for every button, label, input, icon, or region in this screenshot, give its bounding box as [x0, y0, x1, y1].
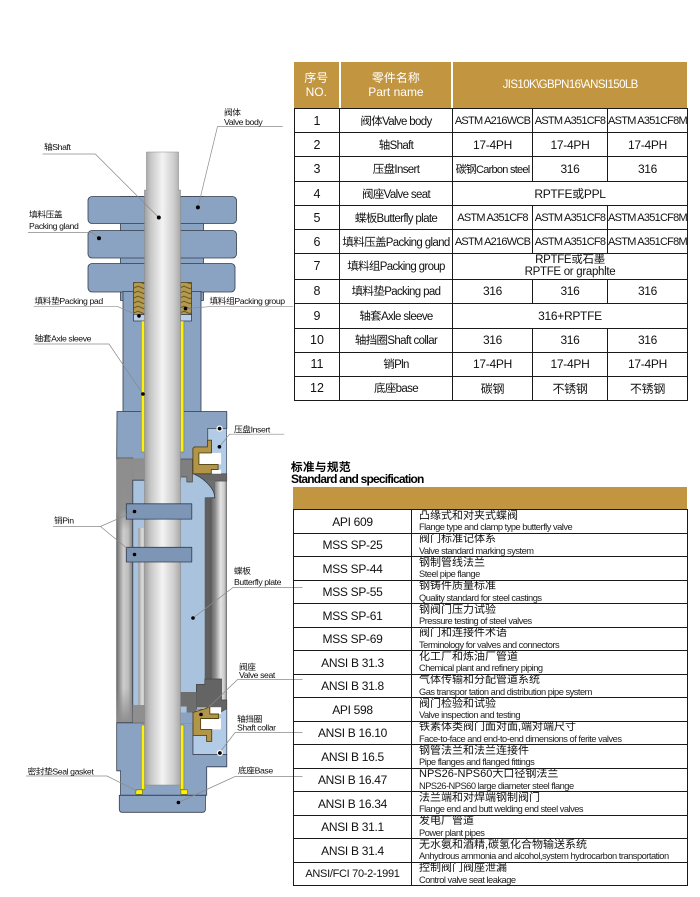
svg-text:蝶板: 蝶板	[234, 566, 251, 576]
svg-text:Shaft collar: Shaft collar	[237, 723, 276, 733]
svg-text:Packing gland: Packing gland	[29, 221, 79, 231]
svg-text:轴套Axle sleeve: 轴套Axle sleeve	[35, 334, 92, 344]
svg-text:压盘Insert: 压盘Insert	[234, 425, 271, 435]
svg-text:填料垫Packing pad: 填料垫Packing pad	[35, 296, 104, 306]
svg-text:Valve body: Valve body	[224, 117, 263, 127]
svg-text:密封垫Seal gasket: 密封垫Seal gasket	[28, 767, 95, 777]
svg-text:轴Shaft: 轴Shaft	[44, 142, 72, 152]
svg-text:填料压盖: 填料压盖	[29, 210, 63, 220]
svg-text:填料组Packing group: 填料组Packing group	[210, 296, 286, 306]
svg-text:Valve seat: Valve seat	[239, 670, 276, 680]
svg-text:Butterfly plate: Butterfly plate	[234, 577, 282, 587]
svg-text:底座Base: 底座Base	[238, 766, 273, 776]
svg-text:销Pin: 销Pin	[54, 516, 74, 526]
